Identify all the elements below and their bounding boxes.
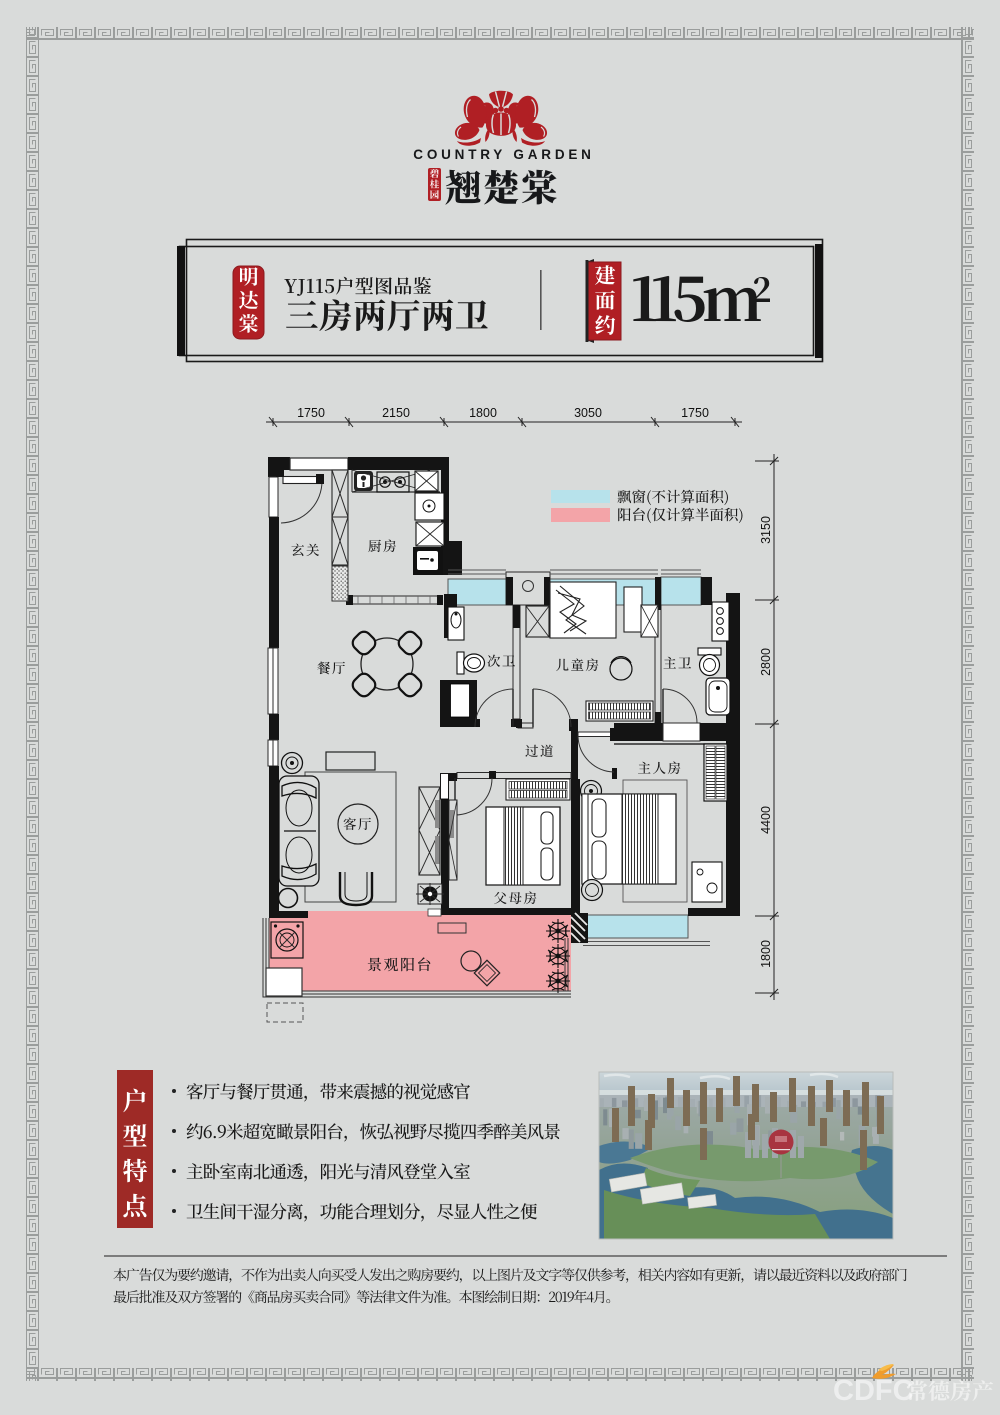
svg-text:3150: 3150 [759,516,773,544]
svg-text:2150: 2150 [382,406,410,420]
svg-text:COUNTRY GARDEN: COUNTRY GARDEN [413,147,594,162]
svg-text:4400: 4400 [759,806,773,834]
svg-text:1800: 1800 [469,406,497,420]
svg-text:2800: 2800 [759,648,773,676]
svg-text:1750: 1750 [681,406,709,420]
svg-text:1800: 1800 [759,940,773,968]
svg-text:CDFC: CDFC [833,1375,914,1407]
svg-text:3050: 3050 [574,406,602,420]
svg-text:1750: 1750 [297,406,325,420]
